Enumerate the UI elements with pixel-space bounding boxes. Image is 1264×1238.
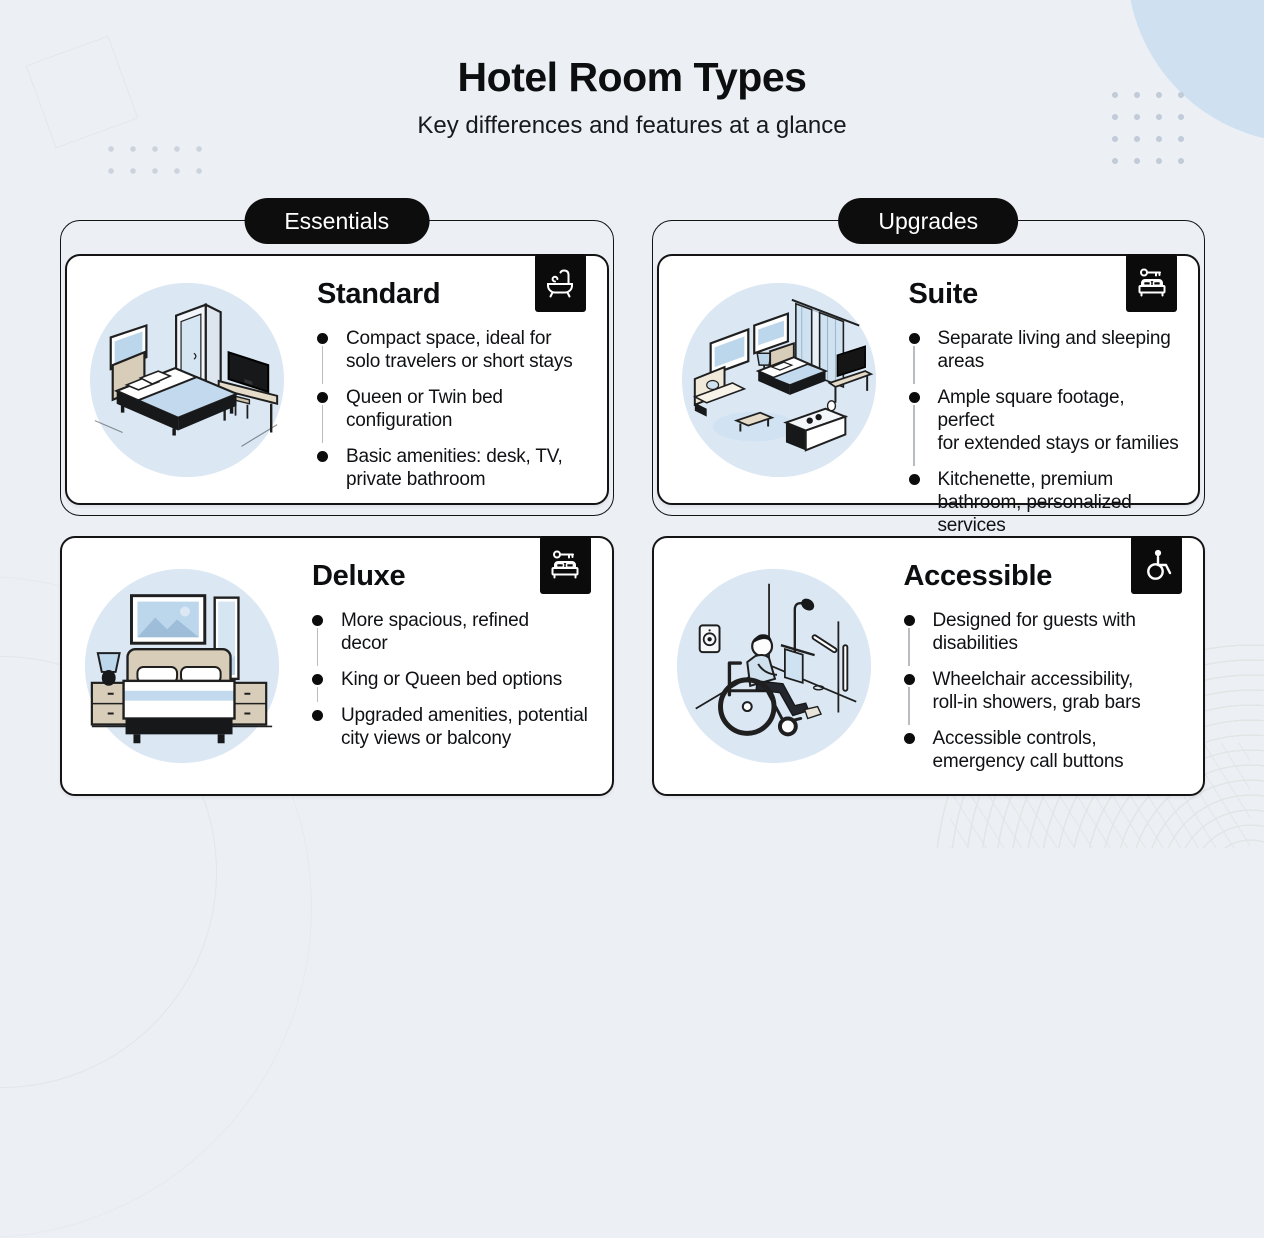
group-label-pill-upgrades: Upgrades (838, 198, 1018, 244)
card-title: Deluxe (312, 560, 596, 593)
bullet-item: Accessible controls, emergency call butt… (904, 727, 1188, 773)
card-title: Suite (909, 278, 1183, 311)
bullet-item: Ample square footage, perfect for extend… (909, 386, 1183, 455)
page-title: Hotel Room Types (0, 54, 1264, 101)
deluxe-bedroom-illustration (78, 562, 286, 770)
bullet-item: Upgraded amenities, potential city views… (312, 704, 596, 750)
group-essentials: Essentials (60, 220, 614, 516)
page-subtitle: Key differences and features at a glance (0, 112, 1264, 140)
group-label-pill-essentials: Essentials (244, 198, 429, 244)
bullet-item: Kitchenette, premium bathroom, personali… (909, 468, 1183, 537)
suite-room-illustration (675, 276, 883, 484)
card-suite: Suite Separate living and sleeping areas… (657, 254, 1201, 505)
bullet-list: More spacious, refined decor King or Que… (312, 609, 596, 750)
bullet-item: King or Queen bed options (312, 668, 596, 691)
card-standard-content: Standard Compact space, ideal for solo t… (317, 278, 591, 504)
bullet-item: Compact space, ideal for solo travelers … (317, 327, 591, 373)
card-deluxe-content: Deluxe More spacious, refined decor King… (312, 560, 596, 763)
card-suite-content: Suite Separate living and sleeping areas… (909, 278, 1183, 550)
bullet-list: Compact space, ideal for solo travelers … (317, 327, 591, 491)
card-standard: Standard Compact space, ideal for solo t… (65, 254, 609, 505)
header: Hotel Room Types Key differences and fea… (0, 0, 1264, 140)
essentials-column: Essentials (60, 220, 614, 796)
cards-grid: Essentials (60, 220, 1205, 796)
bullet-item: Queen or Twin bed configuration (317, 386, 591, 432)
dot-grid-left-decoration (100, 138, 210, 182)
bullet-item: Designed for guests with disabilities (904, 609, 1188, 655)
bullet-list: Separate living and sleeping areas Ample… (909, 327, 1183, 537)
bullet-list: Designed for guests with disabilities Wh… (904, 609, 1188, 773)
card-accessible: Accessible Designed for guests with disa… (652, 536, 1206, 796)
bullet-item: More spacious, refined decor (312, 609, 596, 655)
card-deluxe: Deluxe More spacious, refined decor King… (60, 536, 614, 796)
standard-room-illustration (83, 276, 291, 484)
upgrades-column: Upgrades (652, 220, 1206, 796)
card-title: Standard (317, 278, 591, 311)
bullet-item: Basic amenities: desk, TV, private bathr… (317, 445, 591, 491)
bullet-item: Wheelchair accessibility, roll-in shower… (904, 668, 1188, 714)
bullet-item: Separate living and sleeping areas (909, 327, 1183, 373)
group-upgrades: Upgrades (652, 220, 1206, 516)
card-title: Accessible (904, 560, 1188, 593)
card-accessible-content: Accessible Designed for guests with disa… (904, 560, 1188, 786)
accessible-bathroom-illustration (670, 562, 878, 770)
